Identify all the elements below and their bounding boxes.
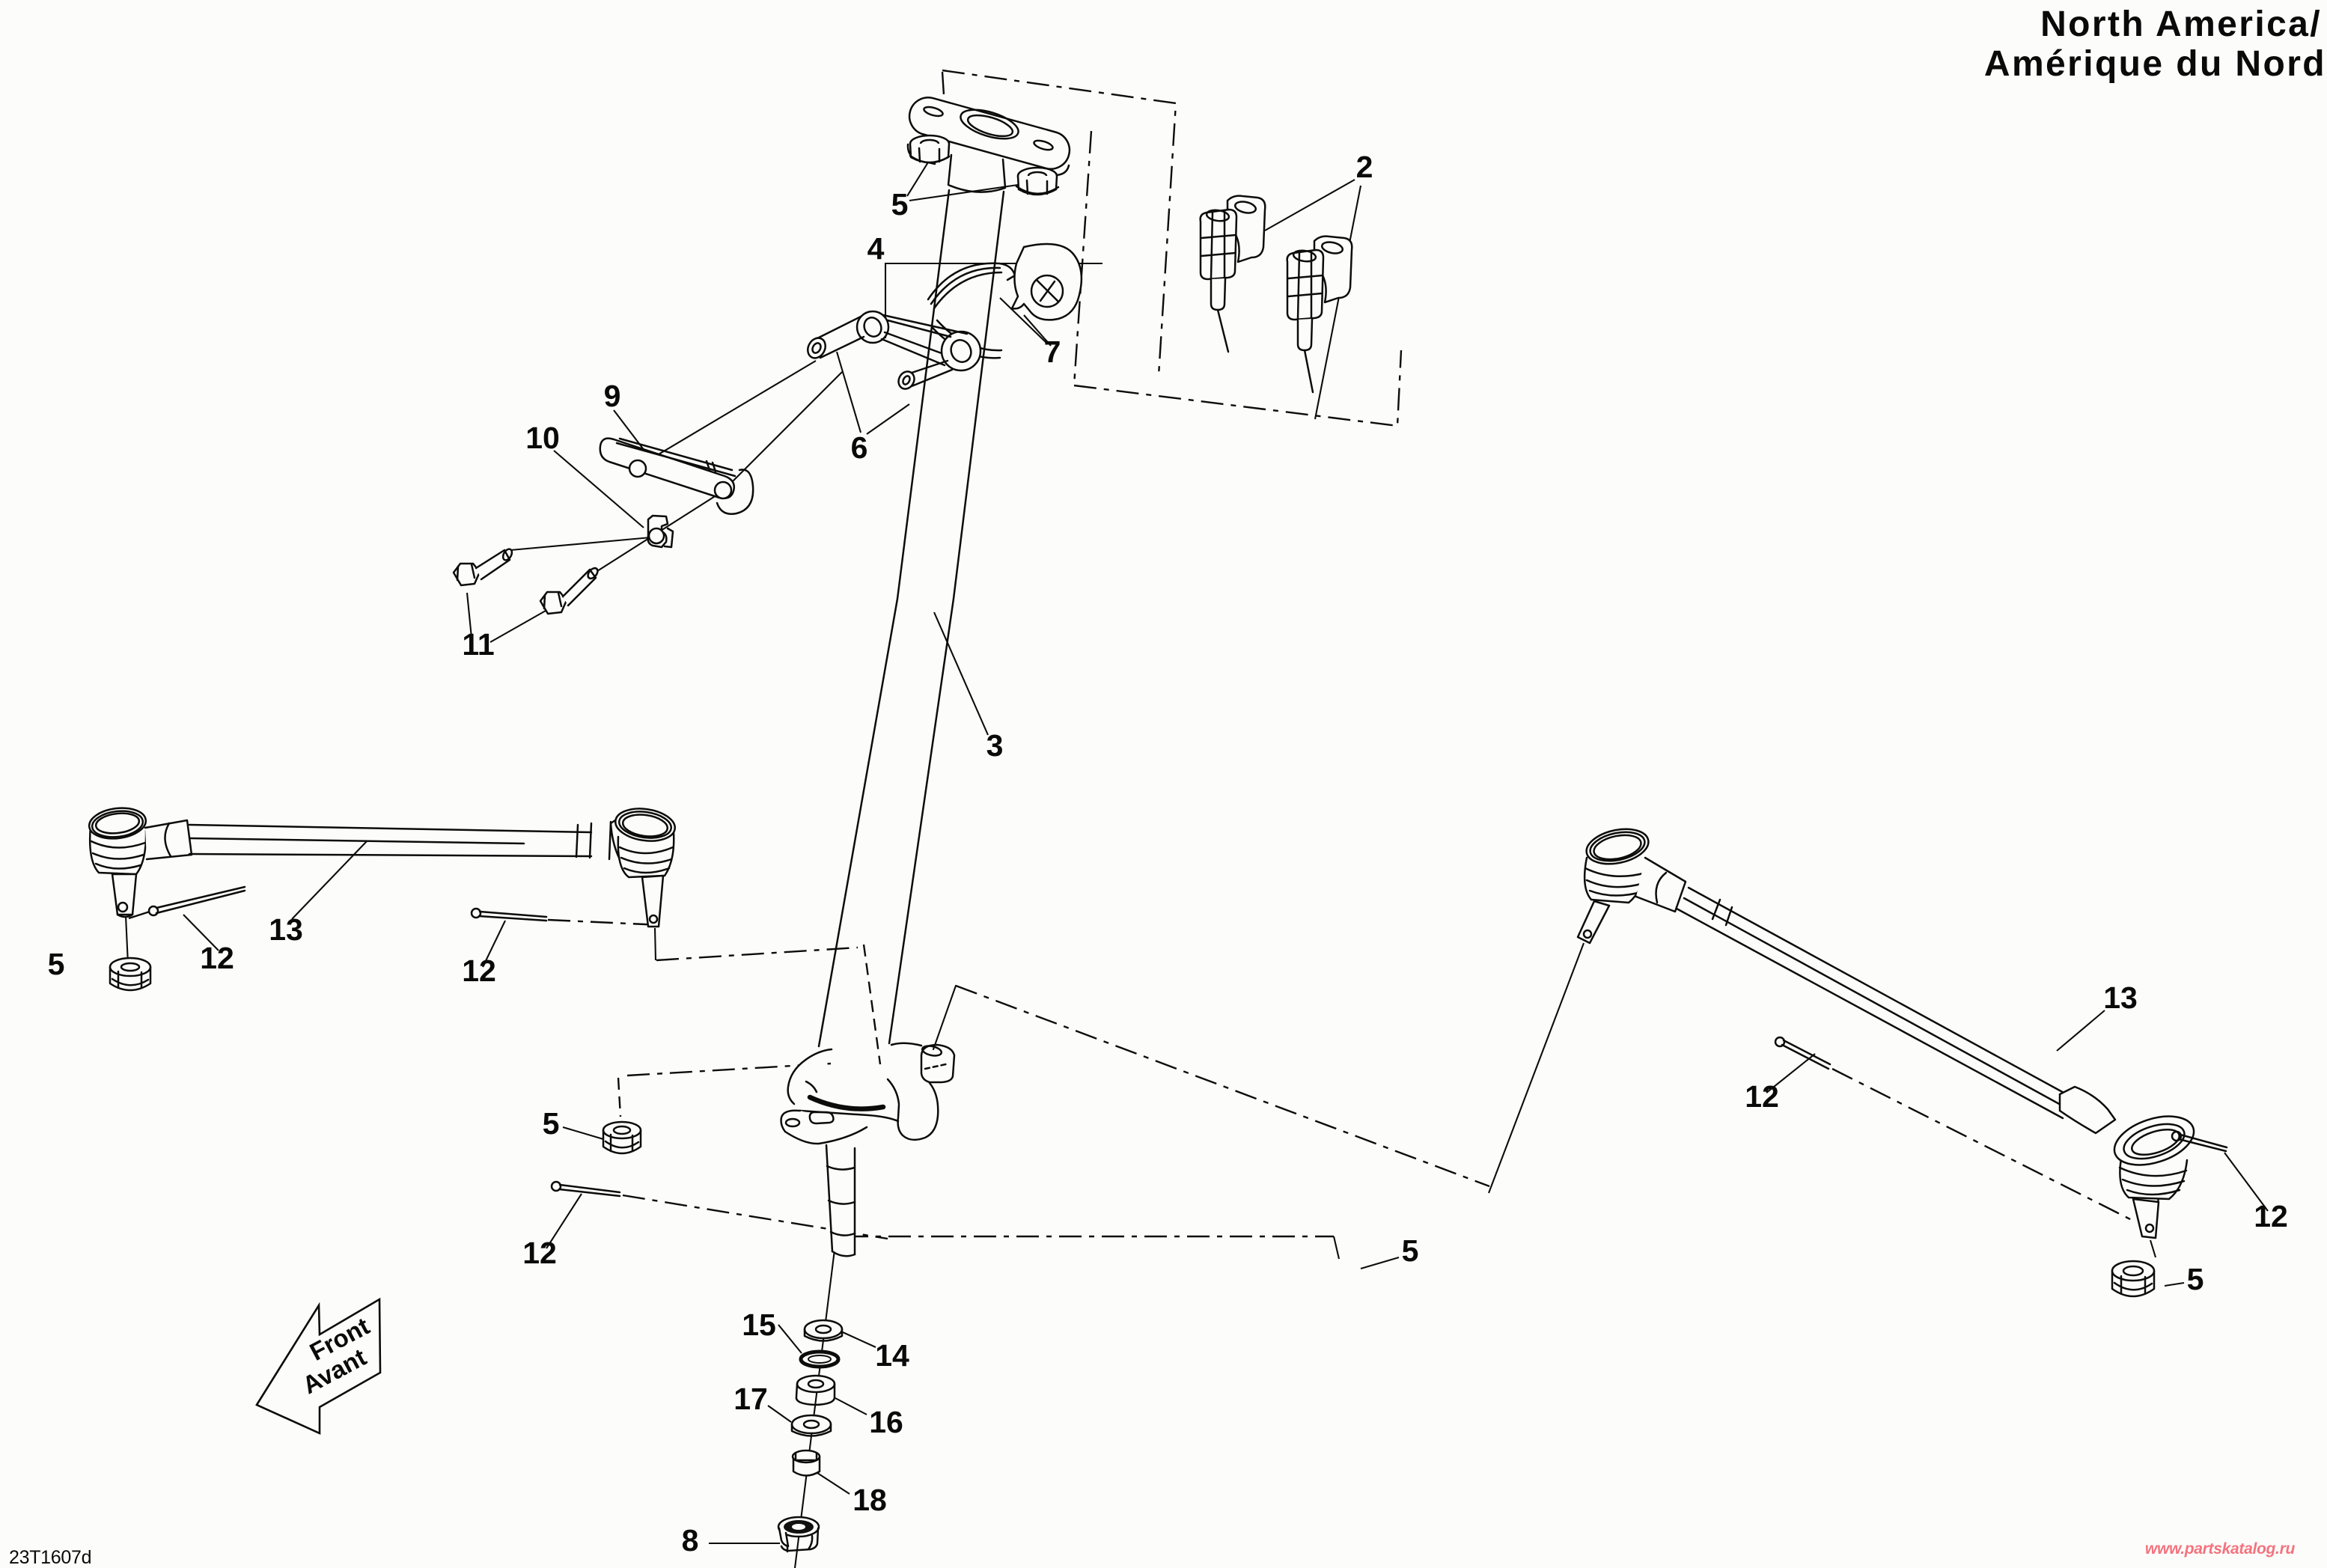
svg-text:12: 12 [462,954,496,988]
svg-text:5: 5 [2187,1262,2204,1296]
svg-text:7: 7 [1044,335,1061,369]
svg-text:12: 12 [200,941,234,975]
svg-text:North America/: North America/ [2040,4,2322,44]
svg-text:12: 12 [522,1236,557,1270]
svg-text:3: 3 [986,728,1004,763]
svg-text:5: 5 [543,1106,560,1141]
svg-text:14: 14 [875,1338,909,1373]
svg-text:Amérique du Nord: Amérique du Nord [1984,44,2326,84]
svg-text:13: 13 [2103,980,2138,1015]
svg-text:5: 5 [1402,1233,1419,1268]
svg-text:11: 11 [462,627,494,662]
svg-text:4: 4 [867,231,885,266]
svg-text:23T1607d: 23T1607d [9,1547,91,1568]
svg-text:www.partskatalog.ru: www.partskatalog.ru [2145,1540,2296,1558]
svg-text:5: 5 [48,947,65,981]
svg-text:17: 17 [734,1382,768,1416]
svg-text:15: 15 [742,1308,776,1342]
svg-text:16: 16 [869,1405,903,1439]
svg-text:8: 8 [682,1523,699,1558]
svg-text:5: 5 [891,187,909,222]
svg-text:6: 6 [851,430,868,465]
svg-text:12: 12 [2254,1199,2288,1233]
svg-text:18: 18 [853,1483,887,1517]
svg-text:13: 13 [269,912,303,947]
svg-text:2: 2 [1356,150,1373,184]
svg-text:12: 12 [1745,1079,1779,1114]
svg-text:9: 9 [604,379,621,413]
svg-text:10: 10 [525,421,560,455]
